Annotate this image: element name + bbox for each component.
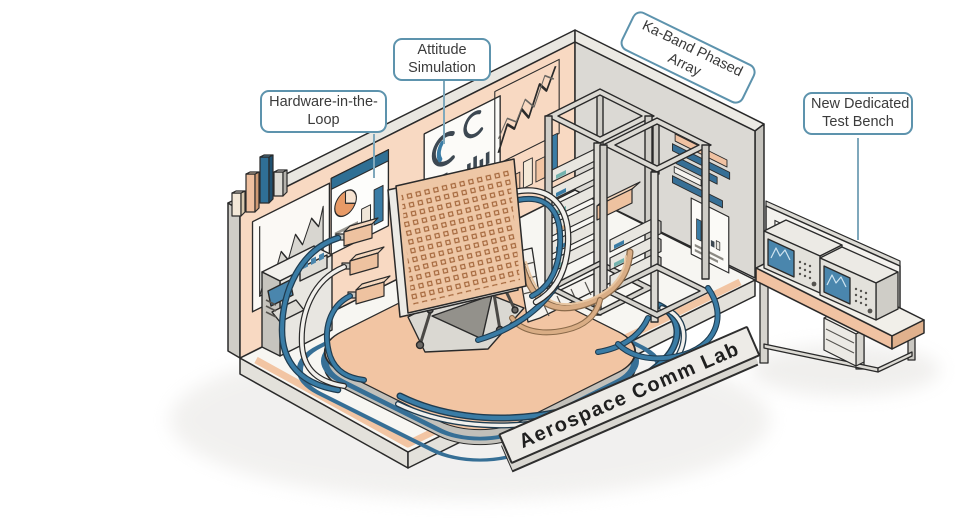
callout-new-dedicated-test-bench: New Dedicated Test Bench (803, 92, 913, 135)
callout-hardware-in-the-loop: Hardware-in-the- Loop (260, 90, 387, 133)
aerospace-comm-lab-illustration: Hardware-in-the- Loop Attitude Simulatio… (0, 0, 978, 522)
isometric-scene (0, 0, 978, 522)
callout-attitude-simulation: Attitude Simulation (393, 38, 491, 81)
callout-text: Hardware-in-the- (268, 94, 379, 112)
test-bench (756, 201, 924, 372)
